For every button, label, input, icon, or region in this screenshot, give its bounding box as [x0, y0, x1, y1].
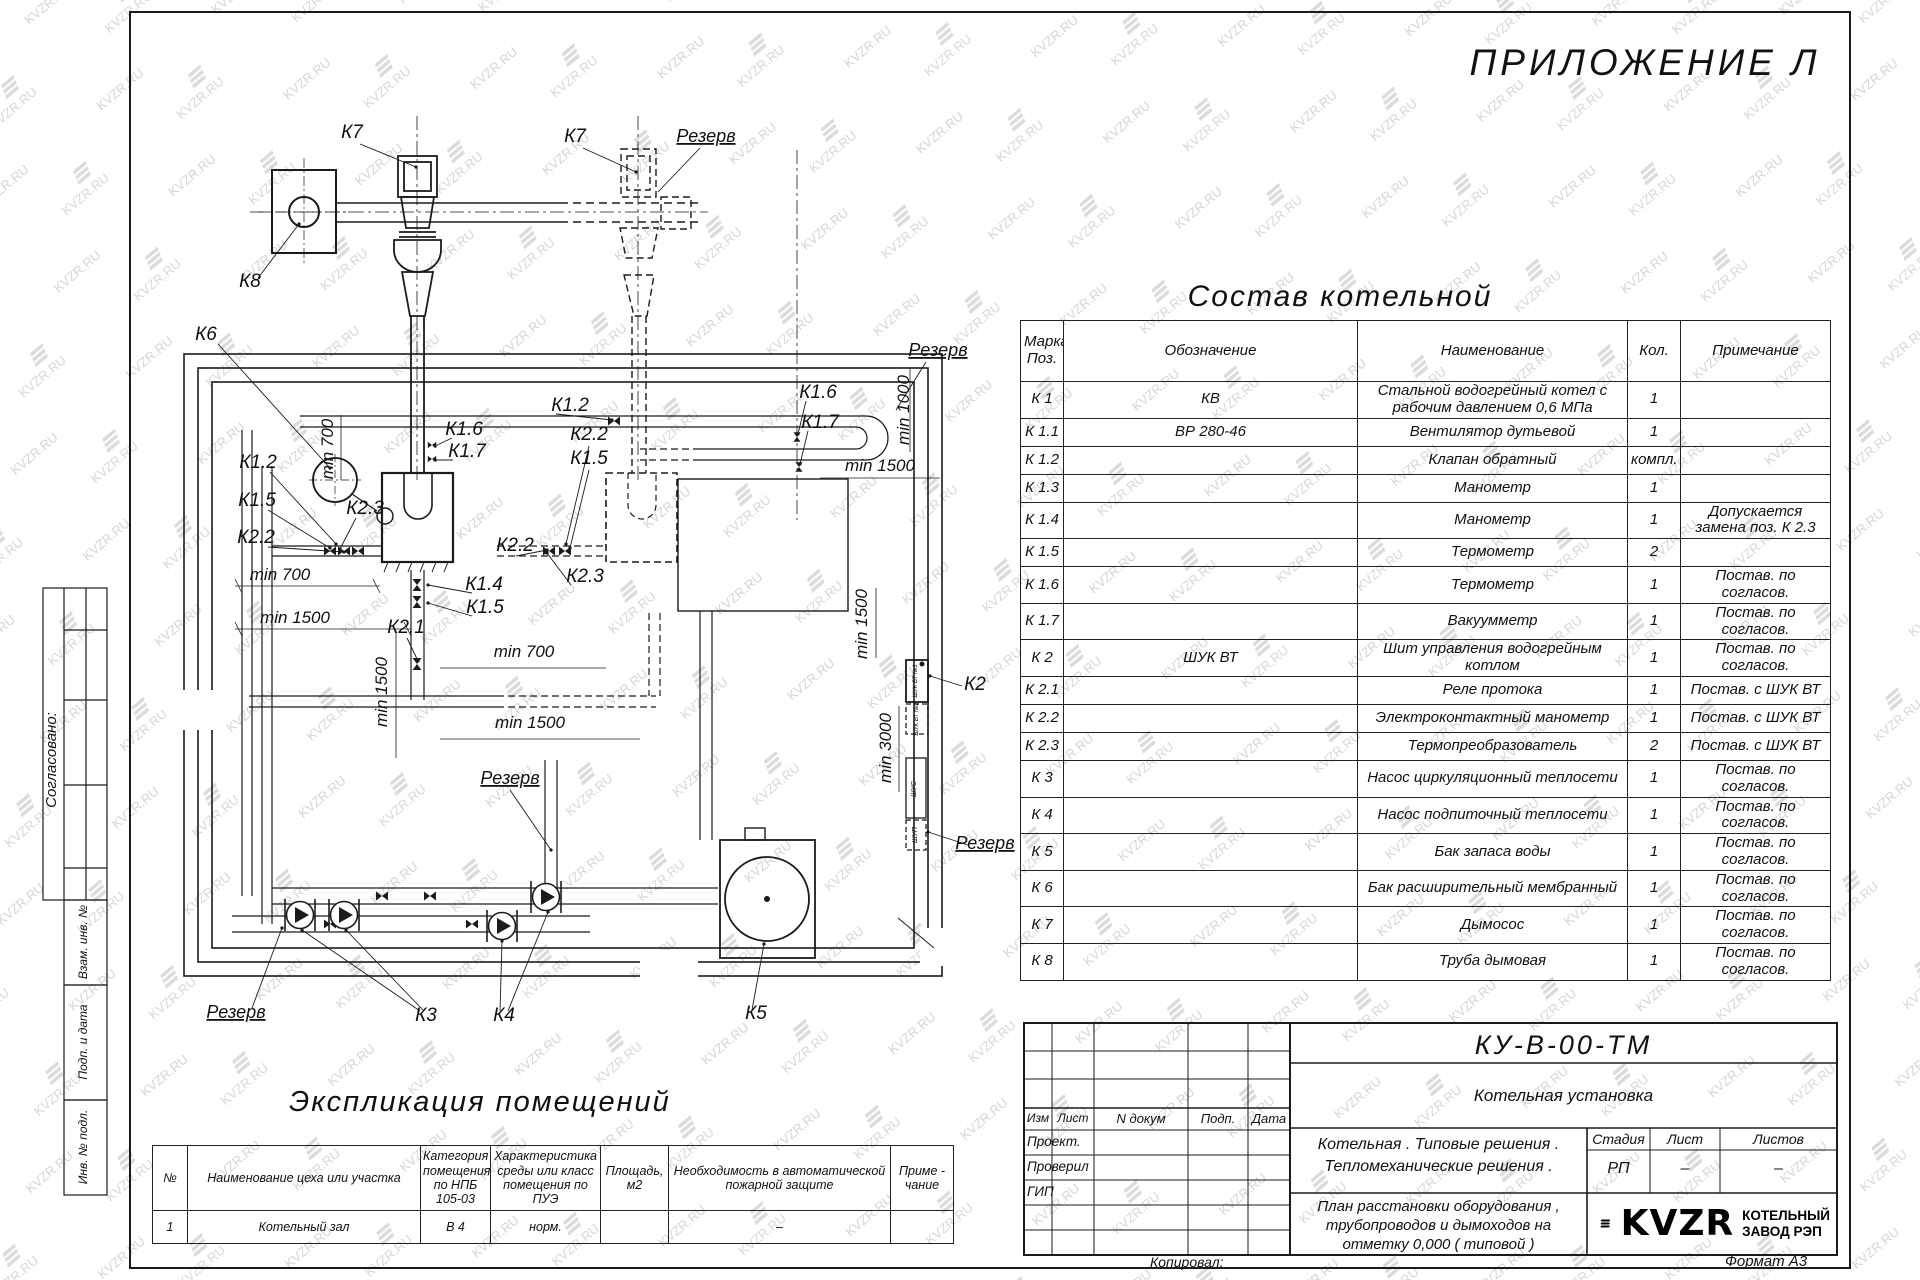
cell: Постав. по согласов.	[1681, 760, 1831, 797]
drawing-label: min 3000	[876, 712, 895, 782]
cell	[601, 1211, 669, 1244]
drawing-label: К1.2	[239, 452, 277, 473]
sostav-row: К 5 Бак запаса воды1Постав. по согласов.	[1021, 834, 1831, 871]
sheet-title-line1: План расстановки оборудования ,	[1292, 1198, 1585, 1215]
cell: Бак запаса воды	[1358, 834, 1628, 871]
stage-header: Стадия	[1587, 1131, 1650, 1147]
drawing-label: К2.2	[237, 527, 275, 548]
drawing-label: К1.6	[799, 382, 837, 403]
kvzr-logo-icon	[1600, 1203, 1613, 1245]
appendix-title: ПРИЛОЖЕНИЕ Л	[1440, 42, 1850, 84]
cell: К 1	[1021, 382, 1064, 419]
drawing-label: Резерв	[480, 768, 539, 788]
drawing-label: К1.5	[238, 490, 276, 511]
cell: К 1.2	[1021, 446, 1064, 474]
drawing-label: К7	[564, 126, 587, 147]
logo-subtitle: КОТЕЛЬНЫЙ ЗАВОД РЭП	[1742, 1208, 1830, 1239]
drawing-label: Резерв	[908, 340, 967, 360]
cell	[1681, 418, 1831, 446]
cell: Постав. с ШУК ВТ	[1681, 732, 1831, 760]
header-cell: Характеристика среды или класс помещения…	[491, 1146, 601, 1211]
header-cell: Категория помещения по НПБ 105-03	[421, 1146, 491, 1211]
cell: Шит управления водогрейным котлом	[1358, 640, 1628, 677]
cell: Постав. по согласов.	[1681, 907, 1831, 944]
sostav-row: К 4 Насос подпиточный теплосети1Постав. …	[1021, 797, 1831, 834]
sheet-title-line3: отметку 0,000 ( типовой )	[1292, 1236, 1585, 1253]
drawing-label: ШУК ВТ №1	[912, 664, 919, 697]
sostav-row: К 6 Бак расширительный мембранный1Постав…	[1021, 870, 1831, 907]
cell: Постав. по согласов.	[1681, 567, 1831, 604]
drawing-label: К2.1	[387, 617, 425, 638]
cell	[1064, 502, 1358, 539]
cell	[1064, 870, 1358, 907]
cell: Труба дымовая	[1358, 943, 1628, 980]
header-cell: Кол.	[1628, 321, 1681, 382]
sostav-row: К 1.6 Термометр1Постав. по согласов.	[1021, 567, 1831, 604]
drawing-label: К8	[239, 271, 261, 292]
sostav-row: К 1.2 Клапан обратныйкомпл.	[1021, 446, 1831, 474]
cell: ВР 280-46	[1064, 418, 1358, 446]
cell: Бак расширительный мембранный	[1358, 870, 1628, 907]
cell: Постав. по согласов.	[1681, 834, 1831, 871]
header-cell: Наименование	[1358, 321, 1628, 382]
drawing-label: К1.6	[445, 419, 483, 440]
header-cell: Наименование цеха или участка	[188, 1146, 421, 1211]
drawing-label: К1.7	[801, 412, 840, 433]
cell: К 2	[1021, 640, 1064, 677]
cell: Вентилятор дутьевой	[1358, 418, 1628, 446]
list-header: Лист	[1650, 1131, 1720, 1147]
cell: К 1.1	[1021, 418, 1064, 446]
drawing-sheet: { "watermark": { "text": "KVZR.RU" }, "a…	[0, 0, 1920, 1280]
cell	[1064, 834, 1358, 871]
drawing-label: К2	[964, 674, 986, 695]
cell	[1064, 760, 1358, 797]
cell: Постав. с ШУК ВТ	[1681, 676, 1831, 704]
project-line2: Тепломеханические решения .	[1292, 1158, 1585, 1176]
drawing-label: Резерв	[206, 1002, 265, 1022]
drawing-label: min 1500	[495, 713, 565, 732]
cell: –	[669, 1211, 891, 1244]
drawing-label: ШУП	[912, 826, 919, 843]
cell	[1064, 797, 1358, 834]
cell: Реле протока	[1358, 676, 1628, 704]
logo-text: KVZR	[1621, 1208, 1735, 1240]
sostav-row: К 2ШУК ВТШит управления водогрейным котл…	[1021, 640, 1831, 677]
drawing-label: К2.3	[346, 498, 384, 519]
company-logo: KVZR КОТЕЛЬНЫЙ ЗАВОД РЭП	[1600, 1200, 1830, 1248]
cell: К 7	[1021, 907, 1064, 944]
cell: Котельный зал	[188, 1211, 421, 1244]
cell: 1	[1628, 797, 1681, 834]
sheet-title-line2: трубопроводов и дымоходов на	[1292, 1217, 1585, 1234]
role-proveril: Проверил	[1027, 1159, 1093, 1174]
sostav-row: К 1.1ВР 280-46Вентилятор дутьевой1	[1021, 418, 1831, 446]
drawing-label: К7	[341, 122, 364, 143]
cell: норм.	[491, 1211, 601, 1244]
cell: К 8	[1021, 943, 1064, 980]
cell: Термометр	[1358, 539, 1628, 567]
cell: Электроконтактный манометр	[1358, 704, 1628, 732]
sostav-row: К 2.2 Электроконтактный манометр1Постав.…	[1021, 704, 1831, 732]
drawing-label: ШУК ВТ №2	[913, 702, 920, 736]
cell: Постав. по согласов.	[1681, 870, 1831, 907]
header-cell: №	[153, 1146, 188, 1211]
cell: К 3	[1021, 760, 1064, 797]
drawing-label: min 700	[250, 565, 311, 584]
cell: К 5	[1021, 834, 1064, 871]
sostav-row: К 1.3 Манометр1	[1021, 474, 1831, 502]
cell	[1064, 676, 1358, 704]
cell	[1064, 704, 1358, 732]
drawing-label: К6	[195, 324, 217, 345]
sostav-title: Состав котельной	[1140, 280, 1540, 314]
header-cell: Обозначение	[1064, 321, 1358, 382]
sostav-table: Марка Поз.ОбозначениеНаименованиеКол.При…	[1020, 320, 1831, 981]
cell	[1681, 474, 1831, 502]
sostav-row: К 8 Труба дымовая1Постав. по согласов.	[1021, 943, 1831, 980]
header-cell: Марка Поз.	[1021, 321, 1064, 382]
doc-code: КУ-В-00-ТМ	[1290, 1030, 1837, 1061]
cell: 1	[1628, 640, 1681, 677]
margin-inv-podl: Инв. № подл.	[76, 1087, 94, 1207]
header-cell: Приме - чание	[891, 1146, 954, 1211]
kopiroval-label: Копировал:	[1150, 1254, 1224, 1270]
drawing-label: min 1500	[260, 608, 330, 627]
cell: Стальной водогрейный котел с рабочим дав…	[1358, 382, 1628, 419]
margin-podp-data: Подп. и дата	[76, 982, 94, 1102]
cell: 1	[1628, 943, 1681, 980]
cell: Дымосос	[1358, 907, 1628, 944]
cell	[1064, 603, 1358, 640]
cell: КВ	[1064, 382, 1358, 419]
drawing-label: К1.5	[570, 448, 608, 469]
sostav-header-row: Марка Поз.ОбозначениеНаименованиеКол.При…	[1021, 321, 1831, 382]
cell: 1	[1628, 418, 1681, 446]
header-cell: Примечание	[1681, 321, 1831, 382]
drawing-label: К2.2	[496, 535, 534, 556]
cell: Манометр	[1358, 502, 1628, 539]
col-list: Лист	[1052, 1111, 1094, 1125]
list-value: –	[1650, 1160, 1720, 1178]
cell: Вакуумметр	[1358, 603, 1628, 640]
sostav-row: К 1КВСтальной водогрейный котел с рабочи…	[1021, 382, 1831, 419]
cell	[1064, 732, 1358, 760]
listov-header: Листов	[1720, 1131, 1837, 1147]
logo-sub2: ЗАВОД РЭП	[1742, 1224, 1822, 1239]
drawing-label: min 1500	[852, 588, 871, 658]
sostav-row: К 1.4 Манометр1Допускается замена поз. К…	[1021, 502, 1831, 539]
cell: 2	[1628, 539, 1681, 567]
role-gip: ГИП	[1027, 1184, 1093, 1199]
cell: компл.	[1628, 446, 1681, 474]
cell: Постав. по согласов.	[1681, 943, 1831, 980]
col-podp: Подп.	[1188, 1111, 1248, 1126]
cell	[1681, 539, 1831, 567]
drawing-label: К5	[745, 1003, 767, 1024]
cell: 1	[1628, 382, 1681, 419]
cell: В 4	[421, 1211, 491, 1244]
cell: К 2.2	[1021, 704, 1064, 732]
cell: Термометр	[1358, 567, 1628, 604]
drawing-label: min 700	[494, 642, 555, 661]
cell: Насос циркуляционный теплосети	[1358, 760, 1628, 797]
col-data: Дата	[1248, 1111, 1290, 1126]
cell: К 6	[1021, 870, 1064, 907]
cell: 1	[1628, 704, 1681, 732]
explication-table: №Наименование цеха или участкаКатегория …	[152, 1145, 954, 1244]
project-line1: Котельная . Типовые решения .	[1292, 1136, 1585, 1154]
cell: К 1.7	[1021, 603, 1064, 640]
cell: Постав. по согласов.	[1681, 797, 1831, 834]
sostav-row: К 3 Насос циркуляционный теплосети1Поста…	[1021, 760, 1831, 797]
drawing-label: К3	[415, 1005, 437, 1026]
listov-value: –	[1720, 1160, 1837, 1178]
cell: Манометр	[1358, 474, 1628, 502]
drawing-label: К4	[493, 1005, 515, 1026]
logo-sub1: КОТЕЛЬНЫЙ	[1742, 1208, 1830, 1223]
sostav-row: К 1.5 Термометр2	[1021, 539, 1831, 567]
drawing-label: К1.5	[466, 597, 504, 618]
cell: Постав. по согласов.	[1681, 603, 1831, 640]
header-cell: Площадь, м2	[601, 1146, 669, 1211]
explication-title: Экспликация помещений	[255, 1086, 705, 1119]
drawing-label: К1.7	[448, 441, 487, 462]
object-name: Котельная установка	[1290, 1086, 1837, 1106]
explication-row: 1Котельный залВ 4норм. –	[153, 1211, 954, 1244]
cell: Клапан обратный	[1358, 446, 1628, 474]
cell: Насос подпиточный теплосети	[1358, 797, 1628, 834]
cell: К 1.6	[1021, 567, 1064, 604]
drawing-label: К1.2	[551, 395, 589, 416]
cell: 1	[1628, 502, 1681, 539]
sostav-row: К 2.1 Реле протока1Постав. с ШУК ВТ	[1021, 676, 1831, 704]
cell: 1	[153, 1211, 188, 1244]
explication-header-row: №Наименование цеха или участкаКатегория …	[153, 1146, 954, 1211]
cell: 1	[1628, 567, 1681, 604]
cell: К 2.3	[1021, 732, 1064, 760]
header-cell: Необходимость в автоматической пожарной …	[669, 1146, 891, 1211]
drawing-label: Резерв	[676, 126, 735, 146]
drawing-label: ШУС	[911, 780, 918, 797]
cell: Постав. по согласов.	[1681, 640, 1831, 677]
cell	[1064, 446, 1358, 474]
cell	[1064, 539, 1358, 567]
margin-soglasovano: Согласовано:	[43, 610, 63, 910]
col-izm: Изм	[1024, 1111, 1052, 1125]
drawing-label: min 1500	[372, 656, 391, 726]
sostav-row: К 7 Дымосос1Постав. по согласов.	[1021, 907, 1831, 944]
drawing-label: Резерв	[955, 833, 1014, 853]
cell: К 1.5	[1021, 539, 1064, 567]
drawing-label: min 700	[318, 418, 337, 479]
stage-value: РП	[1587, 1160, 1650, 1178]
cell: К 1.4	[1021, 502, 1064, 539]
cell: 1	[1628, 907, 1681, 944]
cell	[1064, 943, 1358, 980]
cell: 2	[1628, 732, 1681, 760]
cell	[1064, 567, 1358, 604]
drawing-label: min 1500	[845, 456, 915, 475]
drawing-label: К2.2	[570, 424, 608, 445]
cell: 1	[1628, 676, 1681, 704]
drawing-label: К2.3	[566, 566, 604, 587]
cell	[1681, 446, 1831, 474]
col-ndoc: N докум	[1094, 1111, 1188, 1126]
drawing-label: К1.4	[465, 574, 503, 595]
cell: Постав. с ШУК ВТ	[1681, 704, 1831, 732]
cell: К 4	[1021, 797, 1064, 834]
cell: К 2.1	[1021, 676, 1064, 704]
cell: 1	[1628, 760, 1681, 797]
cell: 1	[1628, 834, 1681, 871]
cell: ШУК ВТ	[1064, 640, 1358, 677]
cell: Термопреобразователь	[1358, 732, 1628, 760]
format-label: Формат А3	[1725, 1253, 1807, 1270]
cell: Допускается замена поз. К 2.3	[1681, 502, 1831, 539]
cell	[1681, 382, 1831, 419]
cell: 1	[1628, 474, 1681, 502]
cell	[1064, 907, 1358, 944]
sostav-row: К 2.3 Термопреобразователь2Постав. с ШУК…	[1021, 732, 1831, 760]
sostav-row: К 1.7 Вакуумметр1Постав. по согласов.	[1021, 603, 1831, 640]
cell: 1	[1628, 603, 1681, 640]
role-proekt: Проект.	[1027, 1134, 1093, 1149]
cell: 1	[1628, 870, 1681, 907]
cell	[1064, 474, 1358, 502]
cell: К 1.3	[1021, 474, 1064, 502]
cell	[891, 1211, 954, 1244]
drawing-label: min 1000	[894, 374, 913, 444]
